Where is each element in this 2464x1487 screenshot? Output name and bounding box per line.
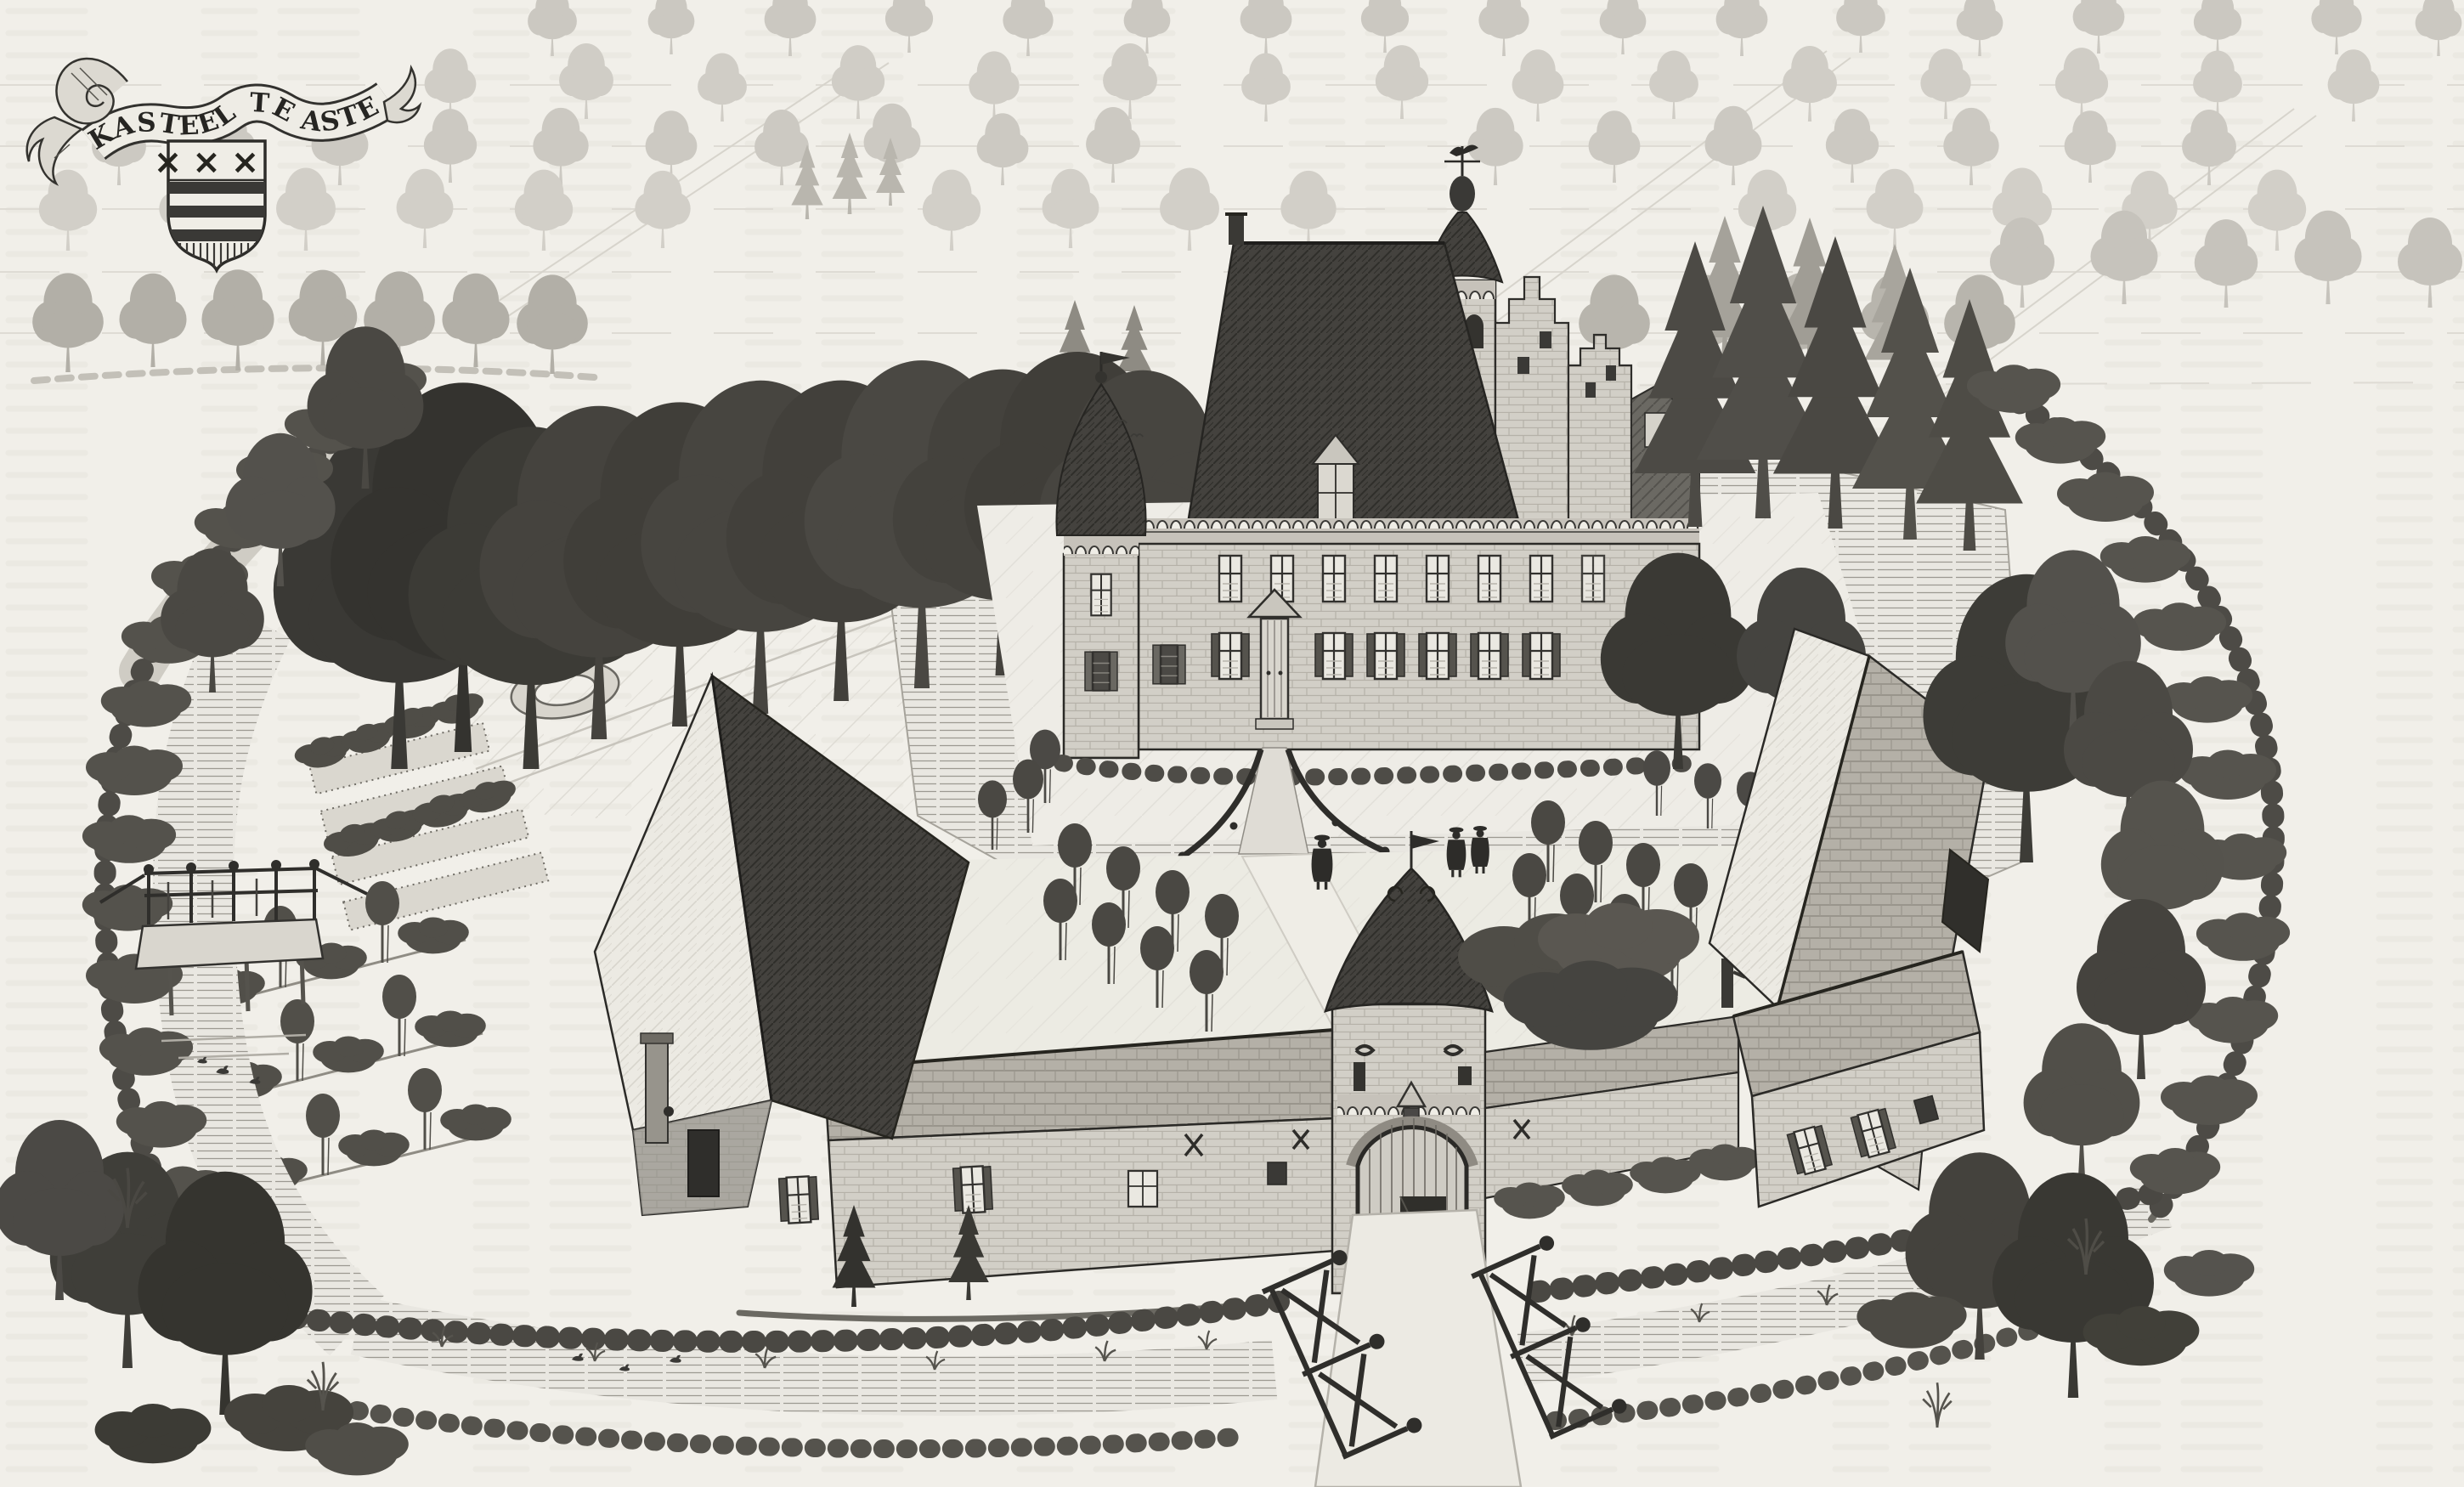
corbel-frieze	[1139, 518, 1699, 544]
barn-door	[688, 1130, 719, 1196]
barn-chimney	[646, 1041, 668, 1143]
shield-saltires: ×××	[154, 143, 270, 182]
castle-engraving-svg: KASTEEL TE ASTEN ×××	[0, 0, 2464, 1487]
engraving-kasteel-te-asten: KASTEEL TE ASTEN ×××	[0, 0, 2464, 1487]
